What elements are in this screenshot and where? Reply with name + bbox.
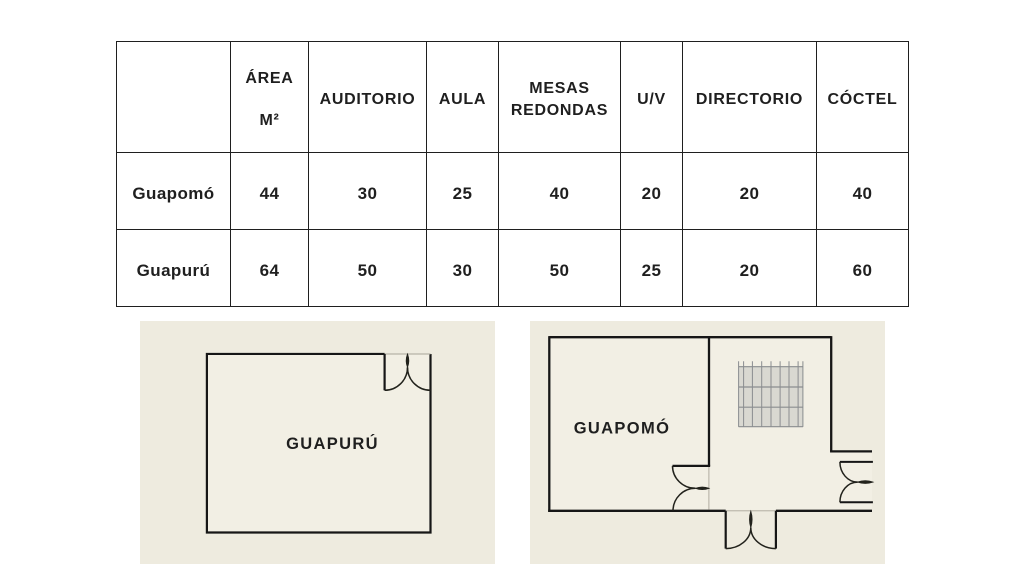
svg-text:GUAPOMÓ: GUAPOMÓ (574, 419, 671, 438)
svg-text:GUAPURÚ: GUAPURÚ (286, 434, 379, 453)
